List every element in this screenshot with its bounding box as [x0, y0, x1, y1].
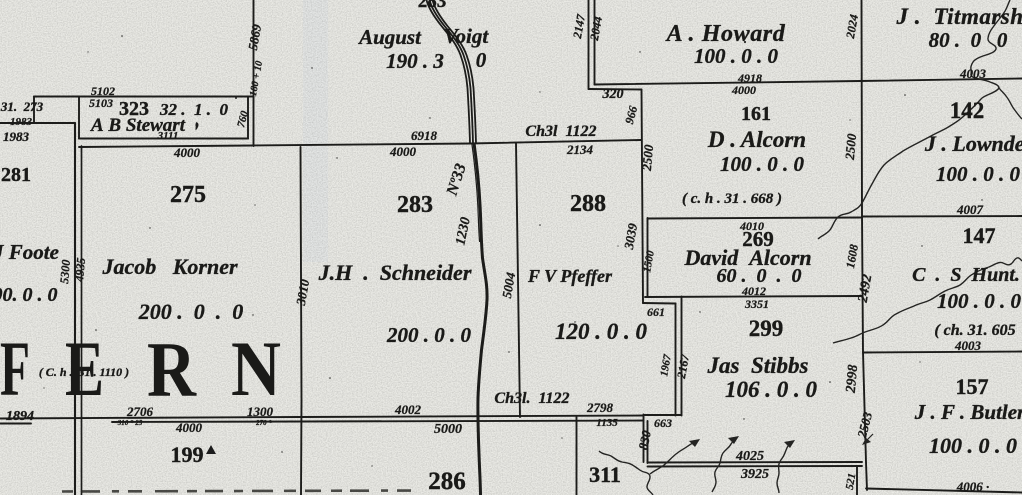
svg-text:( C. h . 31 . 1110 ): ( C. h . 31 . 1110 ) [39, 365, 129, 379]
svg-text:4000: 4000 [731, 83, 756, 97]
svg-text:311: 311 [589, 462, 621, 487]
svg-text:J . F . Butler: J . F . Butler [914, 400, 1022, 424]
svg-text:100 . 0 . 0: 100 . 0 . 0 [937, 289, 1022, 313]
svg-text:80 . 0 0: 80 . 0 0 [929, 28, 1008, 52]
svg-text:2134: 2134 [566, 142, 594, 157]
svg-text:4002: 4002 [394, 402, 422, 417]
svg-text:Voigt: Voigt [444, 24, 490, 48]
svg-text:( ch. 31. 605: ( ch. 31. 605 [934, 322, 1015, 339]
svg-text:1983: 1983 [3, 129, 30, 144]
svg-text:5300: 5300 [57, 259, 73, 284]
svg-text:J.H . Schneider: J.H . Schneider [318, 260, 472, 285]
svg-text:6918: 6918 [411, 128, 438, 143]
svg-text:161: 161 [741, 103, 771, 125]
svg-text:5103: 5103 [89, 96, 113, 110]
svg-text:100 . 0 . 0: 100 . 0 . 0 [720, 152, 805, 176]
svg-text:4006 ·: 4006 · [956, 479, 990, 494]
svg-text:106 . 0 . 0: 106 . 0 . 0 [725, 377, 818, 402]
svg-text:4003: 4003 [954, 338, 982, 353]
svg-text:288: 288 [570, 191, 606, 217]
svg-text:1983: 1983 [10, 116, 33, 128]
svg-text:N: N [231, 325, 281, 412]
svg-text:2500: 2500 [639, 144, 656, 173]
svg-text:281: 281 [1, 164, 31, 186]
svg-text:2998: 2998 [844, 364, 861, 394]
svg-text:00. 0 . 0: 00. 0 . 0 [0, 284, 58, 306]
svg-text:190 . 3: 190 . 3 [386, 49, 444, 73]
svg-text:157: 157 [956, 374, 989, 399]
svg-text:D . Alcorn: D . Alcorn [707, 127, 806, 152]
svg-text:283: 283 [397, 192, 433, 218]
svg-text:F: F [0, 325, 30, 412]
svg-text:100 . 0 . 0: 100 . 0 . 0 [694, 44, 779, 68]
svg-text:270 *: 270 * [255, 419, 272, 427]
svg-text:C . S Hunt.: C . S Hunt. [912, 264, 1020, 286]
svg-text:4000: 4000 [389, 144, 417, 159]
svg-text:142: 142 [950, 98, 985, 123]
svg-text:4000: 4000 [175, 420, 203, 435]
svg-text:286: 286 [428, 468, 466, 495]
svg-text:J . Lowndes: J . Lowndes [924, 131, 1022, 156]
svg-text:4007: 4007 [956, 202, 984, 217]
svg-text:( c. h . 31 . 668 ): ( c. h . 31 . 668 ) [682, 191, 782, 207]
svg-text:310 * 25: 310 * 25 [117, 419, 143, 427]
svg-text:31. 273: 31. 273 [0, 99, 44, 114]
svg-text:August: August [357, 25, 422, 49]
svg-text:120 . 0 . 0: 120 . 0 . 0 [555, 319, 648, 344]
svg-text:2798: 2798 [586, 400, 614, 415]
svg-text:3351: 3351 [744, 297, 769, 311]
svg-text:5000: 5000 [434, 422, 462, 437]
svg-text:Jas Stibbs: Jas Stibbs [707, 353, 809, 378]
svg-text:3925: 3925 [740, 467, 769, 482]
svg-text:200 . 0 . 0: 200 . 0 . 0 [386, 323, 472, 347]
svg-text:299: 299 [749, 316, 784, 341]
svg-text:100 . 0 . 0: 100 . 0 . 0 [929, 433, 1017, 458]
svg-text:2706: 2706 [126, 404, 154, 419]
svg-text:4003: 4003 [959, 66, 987, 81]
svg-text:200 . 0 . 0: 200 . 0 . 0 [138, 299, 244, 324]
svg-text:147: 147 [963, 223, 996, 248]
svg-text:663: 663 [654, 416, 672, 430]
svg-text:100 . 0 . 0: 100 . 0 . 0 [936, 162, 1021, 186]
svg-text:275: 275 [170, 182, 206, 208]
svg-text:J Foote: J Foote [0, 240, 59, 264]
svg-text:283: 283 [418, 0, 447, 12]
svg-text:4012: 4012 [741, 284, 766, 298]
svg-text:1894: 1894 [6, 409, 34, 424]
svg-text:4025: 4025 [735, 449, 764, 464]
svg-text:0: 0 [476, 48, 487, 72]
svg-text:661: 661 [647, 305, 665, 319]
svg-text:Ch3l. 1122: Ch3l. 1122 [494, 390, 569, 407]
svg-text:3111: 3111 [157, 130, 179, 142]
svg-text:4000: 4000 [173, 145, 201, 160]
svg-text:2500: 2500 [842, 133, 859, 162]
svg-text:R: R [147, 326, 197, 413]
svg-text:1135: 1135 [596, 417, 618, 429]
svg-text:4935: 4935 [72, 257, 88, 283]
svg-text:1300: 1300 [247, 404, 274, 419]
svg-text:F V Pfeffer: F V Pfeffer [527, 266, 613, 286]
svg-text:Jacob Korner: Jacob Korner [101, 254, 238, 279]
svg-text:Ch3l 1122: Ch3l 1122 [525, 123, 596, 140]
svg-text:320: 320 [602, 87, 624, 102]
svg-text:J . Titmarsh: J . Titmarsh [895, 4, 1022, 29]
svg-text:199: 199 [171, 442, 204, 467]
